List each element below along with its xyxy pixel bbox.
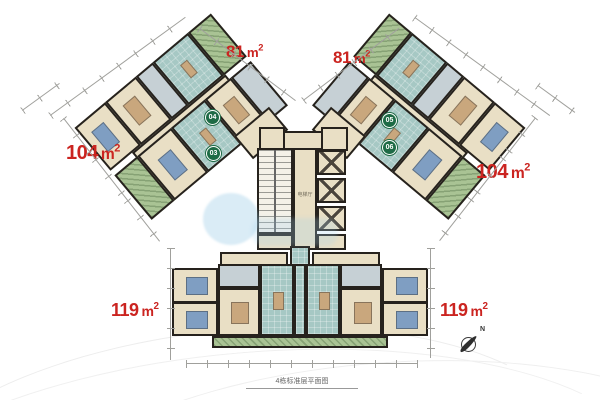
area-unit: m (471, 303, 483, 319)
table (180, 60, 198, 79)
area-exp: 2 (114, 142, 120, 154)
area-exp: 2 (524, 161, 530, 173)
bed (223, 96, 251, 125)
area-label-bottom-right: 119m2 (440, 301, 488, 319)
elevator (317, 150, 346, 175)
area-value: 119 (440, 300, 468, 320)
balcony (212, 336, 388, 348)
table (199, 127, 217, 146)
bed (396, 311, 418, 329)
elevator-service-room (317, 234, 346, 250)
area-unit: m (142, 303, 154, 319)
area-unit: m (247, 45, 258, 60)
bed (448, 96, 477, 126)
bedroom (172, 302, 218, 336)
bedroom (218, 288, 260, 336)
caption: 4栋标准层平面图 (246, 376, 358, 386)
elevator (317, 206, 346, 231)
unit-badge-05: 05 (382, 113, 397, 128)
area-value: 119 (111, 300, 139, 320)
bed (354, 302, 372, 324)
unit-badge-06: 06 (382, 140, 397, 155)
dimension-line (186, 363, 418, 364)
dimension-ticks (186, 360, 418, 368)
bed (186, 311, 208, 329)
core-label: 电梯厅 (295, 193, 315, 198)
caption-underline (246, 388, 358, 389)
dimension-line (170, 248, 171, 360)
bed (412, 149, 442, 181)
bathroom (340, 264, 382, 288)
elevator (317, 178, 346, 203)
corridor (294, 264, 306, 336)
area-label-bottom-left: 119m2 (111, 301, 159, 319)
stairwell (257, 148, 293, 234)
unit-badge-04: 04 (205, 110, 220, 125)
core-hall (257, 234, 293, 250)
floor-plan-image: 电梯厅 (0, 0, 600, 400)
bed (186, 277, 208, 295)
unit-badge-03: 03 (206, 146, 221, 161)
wing-bottom (172, 264, 428, 352)
area-exp: 2 (258, 42, 263, 52)
table (273, 292, 284, 310)
bed (123, 96, 152, 126)
bedroom (172, 268, 218, 303)
bathroom (218, 264, 260, 288)
north-label: N (480, 326, 485, 333)
bedroom (340, 288, 382, 336)
dimension-ticks (427, 248, 435, 358)
corridor (290, 246, 310, 266)
compass-icon: N (458, 326, 492, 358)
bed (158, 149, 188, 181)
elevator-lobby: 电梯厅 (293, 148, 317, 250)
bed (231, 302, 249, 324)
area-unit: m (511, 165, 524, 182)
dimension-ticks (167, 248, 175, 360)
dimension-line (430, 248, 431, 358)
living-room (306, 264, 340, 336)
watermark-logo (203, 193, 259, 245)
area-exp: 2 (483, 301, 488, 312)
area-exp: 2 (154, 301, 159, 312)
bedroom (382, 302, 428, 336)
living-room (260, 264, 294, 336)
bedroom (382, 268, 428, 303)
bed (396, 277, 418, 295)
core: 电梯厅 (257, 148, 348, 252)
area-unit: m (101, 146, 114, 163)
bed (350, 96, 378, 125)
bed (480, 122, 509, 152)
table (319, 292, 330, 310)
table (402, 60, 420, 79)
